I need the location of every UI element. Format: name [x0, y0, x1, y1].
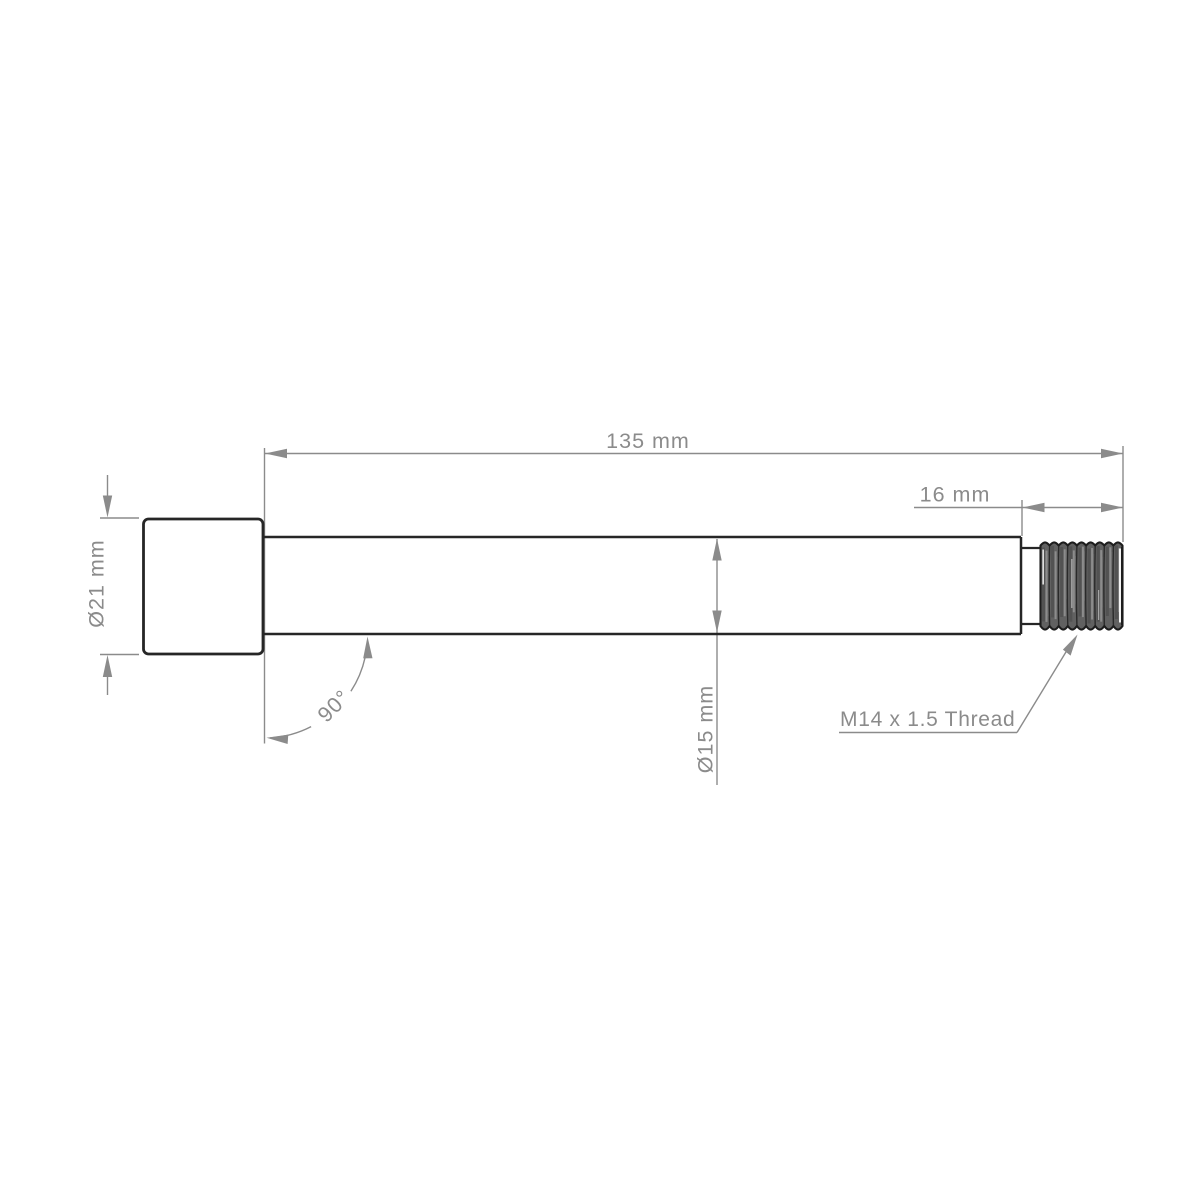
svg-text:135 mm: 135 mm [606, 429, 690, 453]
svg-text:16 mm: 16 mm [920, 483, 991, 507]
svg-text:Ø15 mm: Ø15 mm [694, 685, 718, 773]
svg-text:M14 x 1.5 Thread: M14 x 1.5 Thread [840, 708, 1015, 731]
svg-text:Ø21 mm: Ø21 mm [85, 539, 109, 627]
